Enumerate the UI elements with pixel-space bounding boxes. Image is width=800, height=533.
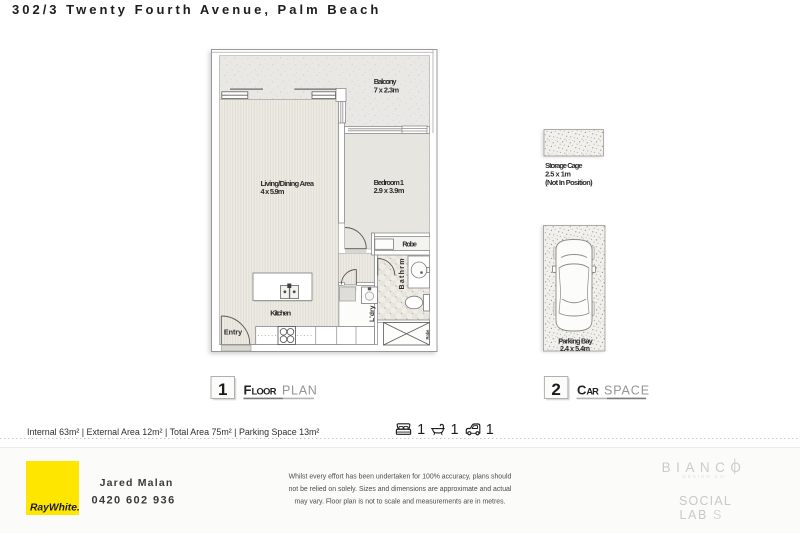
svg-text:7 x 2.3m: 7 x 2.3m [374, 86, 400, 95]
svg-text:may vary. Floor plan is not to: may vary. Floor plan is not to scale and… [295, 499, 506, 506]
svg-text:Bathrm: Bathrm [399, 259, 406, 290]
svg-text:PLAN: PLAN [282, 384, 317, 398]
svg-text:Whilst every effort has been u: Whilst every effort has been undertaken … [289, 474, 512, 481]
svg-text:Robe: Robe [425, 329, 430, 340]
svg-text:Kitchen: Kitchen [270, 308, 291, 317]
svg-text:0420 602 936: 0420 602 936 [92, 495, 176, 507]
svg-text:2.4 x 5.4m: 2.4 x 5.4m [560, 344, 590, 353]
svg-text:1: 1 [218, 380, 227, 399]
svg-text:DESIGN CO: DESIGN CO [682, 474, 725, 480]
svg-text:L'dry: L'dry [369, 305, 376, 322]
svg-text:Internal 63m² | External Area: Internal 63m² | External Area 12m² | Tot… [27, 427, 319, 437]
svg-text:FLOOR: FLOOR [244, 383, 277, 398]
svg-text:SOCIAL: SOCIAL [679, 494, 732, 508]
svg-text:LAB S: LAB S [680, 508, 723, 522]
svg-text:not be relied on solely. Sizes: not be relied on solely. Sizes and dimen… [289, 486, 512, 493]
svg-text:1: 1 [486, 422, 494, 438]
svg-text:4 x 5.9m: 4 x 5.9m [261, 187, 285, 196]
svg-text:BIANCO: BIANCO [662, 460, 747, 475]
svg-text:Entry: Entry [224, 327, 242, 336]
svg-text:RayWhite.: RayWhite. [30, 503, 80, 514]
svg-text:(Not In Position): (Not In Position) [545, 178, 593, 187]
svg-text:Robe: Robe [402, 242, 417, 249]
svg-text:2.9 x 3.9m: 2.9 x 3.9m [374, 186, 405, 195]
svg-text:1: 1 [417, 422, 425, 438]
svg-text:SPACE: SPACE [604, 384, 650, 398]
svg-text:Balcony: Balcony [374, 77, 398, 86]
svg-text:302/3 Twenty Fourth Avenue, Pa: 302/3 Twenty Fourth Avenue, Palm Beach [12, 2, 381, 17]
svg-text:2: 2 [551, 380, 560, 399]
svg-text:Jared Malan: Jared Malan [100, 477, 174, 489]
svg-text:1: 1 [450, 422, 458, 438]
svg-text:CAR: CAR [577, 383, 599, 398]
